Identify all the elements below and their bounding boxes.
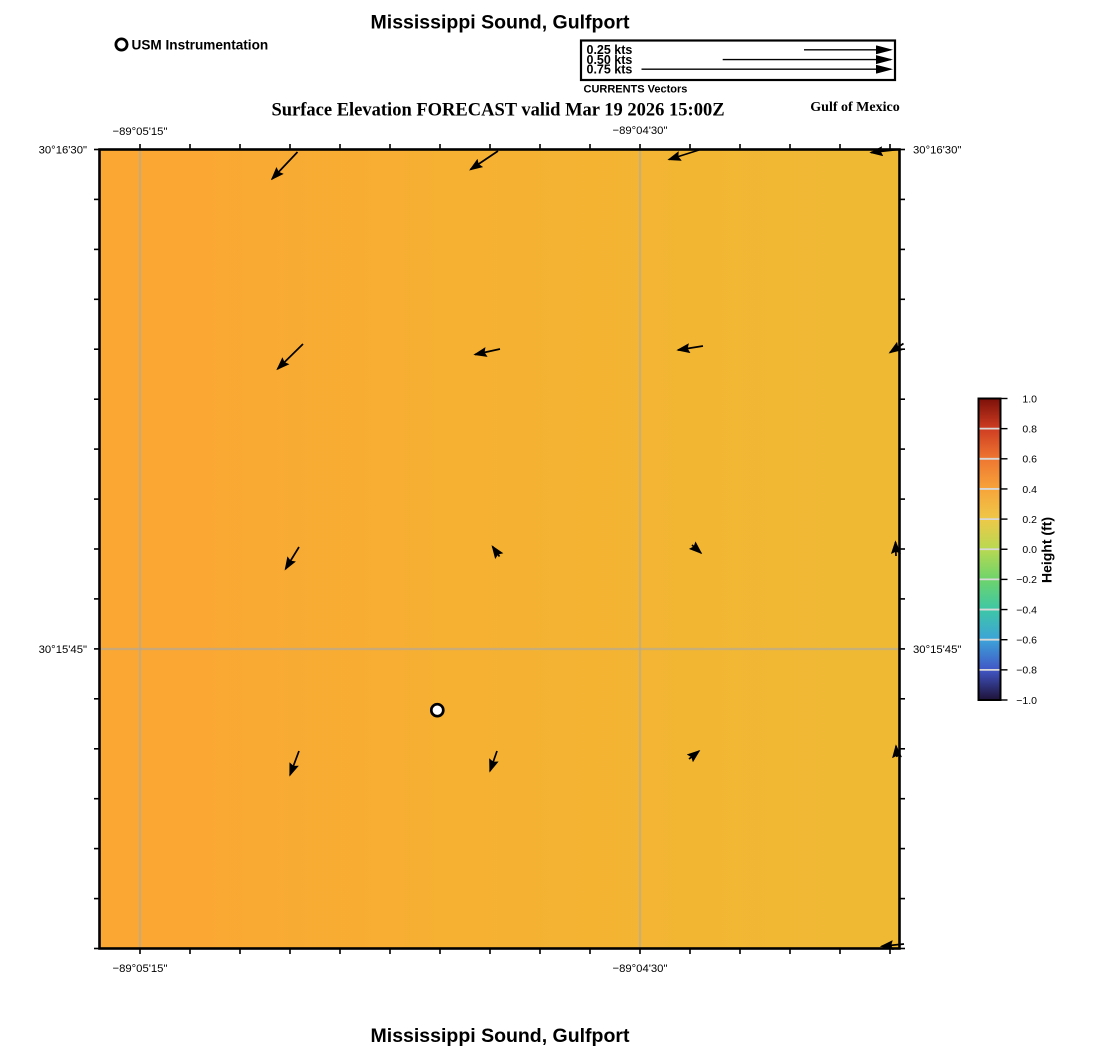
- svg-text:30°15'45": 30°15'45": [913, 644, 961, 656]
- svg-text:−89°04'30": −89°04'30": [613, 125, 668, 137]
- svg-text:30°16'30": 30°16'30": [913, 145, 961, 157]
- svg-text:−0.6: −0.6: [1016, 635, 1037, 647]
- svg-text:Height (ft): Height (ft): [1039, 517, 1055, 583]
- svg-text:Surface Elevation FORECAST val: Surface Elevation FORECAST valid Mar 19 …: [271, 101, 724, 121]
- svg-text:−1.0: −1.0: [1016, 695, 1037, 707]
- svg-text:0.8: 0.8: [1022, 423, 1037, 435]
- svg-text:USM Instrumentation: USM Instrumentation: [132, 38, 269, 53]
- svg-text:0.0: 0.0: [1022, 544, 1037, 556]
- svg-text:0.6: 0.6: [1022, 454, 1037, 466]
- svg-text:0.4: 0.4: [1022, 484, 1037, 496]
- svg-text:−89°05'15": −89°05'15": [113, 963, 168, 975]
- svg-text:Gulf of Mexico: Gulf of Mexico: [810, 100, 899, 115]
- svg-text:−0.2: −0.2: [1016, 574, 1037, 586]
- svg-text:Mississippi Sound, Gulfport: Mississippi Sound, Gulfport: [371, 12, 630, 34]
- svg-text:Mississippi Sound, Gulfport: Mississippi Sound, Gulfport: [371, 1025, 630, 1047]
- svg-text:−0.8: −0.8: [1016, 665, 1037, 677]
- svg-text:30°15'45": 30°15'45": [39, 644, 87, 656]
- svg-text:30°16'30": 30°16'30": [39, 145, 87, 157]
- svg-text:1.0: 1.0: [1022, 393, 1037, 405]
- svg-text:0.2: 0.2: [1022, 514, 1037, 526]
- svg-text:−89°04'30": −89°04'30": [613, 963, 668, 975]
- svg-text:−89°05'15": −89°05'15": [113, 126, 168, 138]
- svg-text:CURRENTS Vectors: CURRENTS Vectors: [584, 84, 688, 96]
- svg-text:0.75 kts: 0.75 kts: [587, 63, 633, 77]
- svg-text:−0.4: −0.4: [1016, 604, 1037, 616]
